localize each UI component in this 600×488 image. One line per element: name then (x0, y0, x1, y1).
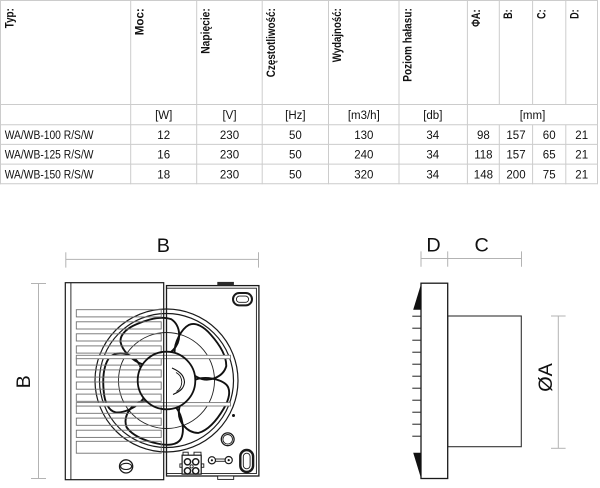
svg-text:50: 50 (289, 169, 302, 181)
svg-text:[Hz]: [Hz] (285, 110, 305, 122)
svg-text:16: 16 (157, 150, 170, 162)
svg-text:148: 148 (474, 169, 493, 181)
svg-text:230: 230 (220, 150, 239, 162)
svg-text:B:: B: (503, 9, 515, 19)
svg-text:Typ:: Typ: (4, 8, 16, 28)
svg-text:118: 118 (474, 150, 492, 162)
svg-text:B: B (157, 235, 170, 257)
svg-text:157: 157 (506, 130, 525, 142)
svg-text:B: B (13, 375, 35, 388)
svg-text:[m3/h]: [m3/h] (348, 110, 380, 122)
svg-text:34: 34 (426, 150, 439, 162)
svg-text:60: 60 (543, 130, 556, 142)
svg-text:65: 65 (543, 150, 556, 162)
svg-text:21: 21 (575, 169, 588, 181)
svg-text:200: 200 (506, 169, 525, 181)
svg-text:50: 50 (289, 150, 302, 162)
svg-text:157: 157 (506, 150, 525, 162)
svg-text:230: 230 (220, 169, 239, 181)
svg-text:320: 320 (354, 169, 373, 181)
svg-text:Wydajność:: Wydajność: (332, 8, 344, 62)
svg-text:Moc:: Moc: (134, 8, 146, 35)
svg-text:C: C (475, 235, 489, 257)
svg-text:34: 34 (426, 130, 439, 142)
svg-text:Napięcie:: Napięcie: (200, 8, 212, 54)
svg-text:240: 240 (354, 150, 373, 162)
svg-text:12: 12 (157, 130, 170, 142)
svg-text:21: 21 (575, 150, 588, 162)
svg-text:Poziom hałasu:: Poziom hałasu: (403, 8, 415, 82)
svg-text:50: 50 (289, 130, 302, 142)
svg-text:[V]: [V] (222, 110, 236, 122)
svg-text:Częstotliwość:: Częstotliwość: (266, 8, 278, 77)
svg-text:ØA: ØA (535, 362, 557, 391)
svg-text:D: D (426, 235, 440, 257)
svg-text:[mm]: [mm] (520, 110, 546, 122)
svg-text:WA/WB-100 R/S/W: WA/WB-100 R/S/W (5, 130, 94, 142)
svg-text:WA/WB-150 R/S/W: WA/WB-150 R/S/W (5, 169, 94, 181)
svg-text:98: 98 (477, 130, 490, 142)
svg-text:230: 230 (220, 130, 239, 142)
svg-text:C:: C: (536, 9, 548, 19)
svg-text:D:: D: (570, 9, 582, 19)
svg-text:[db]: [db] (423, 110, 442, 122)
svg-text:WA/WB-125 R/S/W: WA/WB-125 R/S/W (5, 150, 94, 162)
svg-text:130: 130 (354, 130, 373, 142)
svg-text:18: 18 (157, 169, 170, 181)
svg-text:ΦA:: ΦA: (471, 9, 483, 27)
svg-text:[W]: [W] (155, 110, 172, 122)
svg-text:75: 75 (543, 169, 556, 181)
svg-text:21: 21 (575, 130, 588, 142)
svg-text:34: 34 (426, 169, 439, 181)
